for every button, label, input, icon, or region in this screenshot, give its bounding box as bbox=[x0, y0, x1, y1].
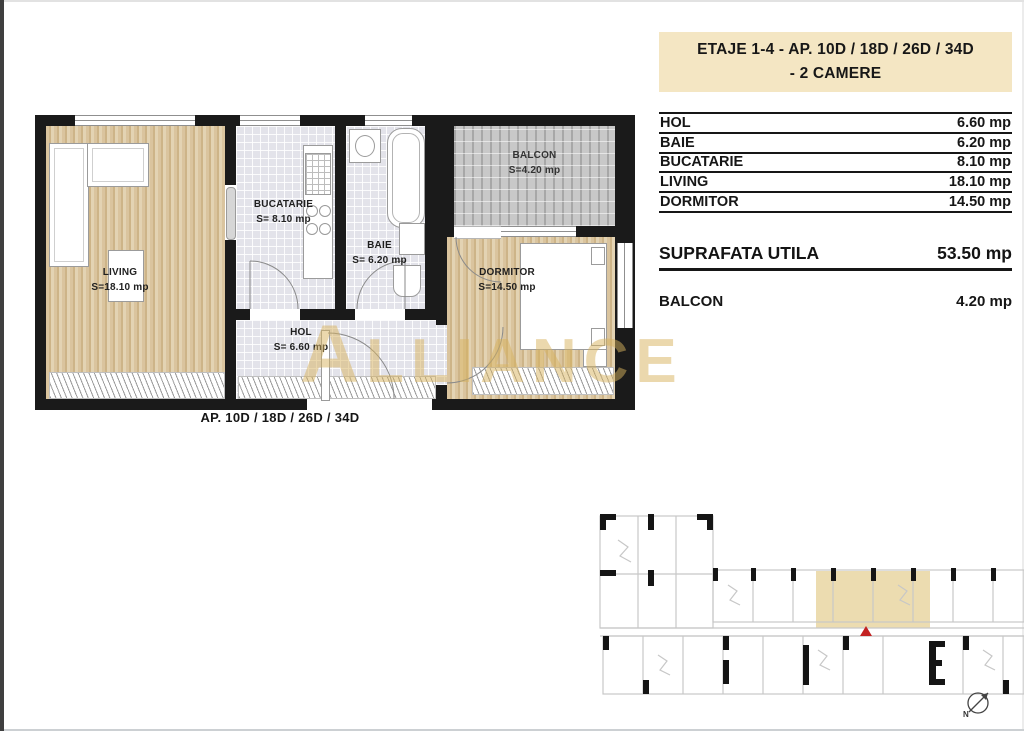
window-balcon-dormitor bbox=[501, 226, 576, 237]
room-label-bucatarie: BUCATARIE S= 8.10 mp bbox=[231, 197, 336, 227]
area-row-label: HOL bbox=[660, 115, 691, 131]
area-row-value: 18.10 mp bbox=[949, 174, 1011, 190]
key-plan: N bbox=[588, 500, 1024, 728]
balcony-door-opening bbox=[454, 226, 501, 239]
room-label-baie: BAIE S= 6.20 mp bbox=[337, 238, 422, 268]
wall bbox=[225, 115, 236, 185]
area-row-label: LIVING bbox=[660, 174, 708, 190]
wall bbox=[576, 226, 615, 237]
wall bbox=[335, 115, 346, 320]
area-row-value: 14.50 mp bbox=[949, 194, 1011, 210]
washing-machine-drum bbox=[355, 135, 375, 157]
page-border-left bbox=[0, 0, 4, 731]
wall bbox=[35, 115, 46, 410]
wall bbox=[35, 399, 307, 410]
radiator-strip-living bbox=[49, 372, 225, 399]
wall bbox=[225, 240, 236, 399]
area-row-label: DORMITOR bbox=[660, 194, 739, 210]
compass-icon bbox=[968, 693, 988, 713]
area-row-label: BAIE bbox=[660, 135, 695, 151]
header-title-line2: - 2 CAMERE bbox=[790, 62, 882, 86]
total-area-value: 53.50 mp bbox=[937, 243, 1012, 264]
room-label-living: LIVING S=18.10 mp bbox=[45, 265, 195, 295]
bathtub-inner bbox=[392, 133, 420, 223]
balcony-area-value: 4.20 mp bbox=[956, 293, 1012, 310]
area-row-baie: BAIE 6.20 mp bbox=[659, 134, 1012, 154]
area-row-value: 6.60 mp bbox=[957, 115, 1011, 131]
pillow bbox=[591, 247, 605, 265]
area-row-hol: HOL 6.60 mp bbox=[659, 114, 1012, 134]
plan-header-box: ETAJE 1-4 - AP. 10D / 18D / 26D / 34D - … bbox=[659, 32, 1012, 92]
key-plan-outline bbox=[600, 516, 1024, 694]
wall bbox=[236, 309, 250, 320]
page-border-top bbox=[4, 0, 1024, 2]
area-row-living: LIVING 18.10 mp bbox=[659, 173, 1012, 193]
washing-machine bbox=[349, 129, 381, 163]
total-area-label: SUPRAFATA UTILA bbox=[659, 243, 819, 264]
alliance-watermark: ALLIANCE bbox=[300, 302, 730, 408]
toilet bbox=[393, 265, 421, 297]
compass-north-label: N bbox=[963, 710, 969, 719]
key-plan-walls bbox=[600, 514, 1009, 694]
area-row-dormitor: DORMITOR 14.50 mp bbox=[659, 193, 1012, 213]
wall bbox=[425, 115, 454, 237]
area-row-bucatarie: BUCATARIE 8.10 mp bbox=[659, 154, 1012, 174]
sofa bbox=[49, 143, 89, 267]
area-row-value: 6.20 mp bbox=[957, 135, 1011, 151]
room-label-dormitor: DORMITOR S=14.50 mp bbox=[437, 265, 577, 295]
bathtub bbox=[387, 128, 425, 228]
area-table: HOL 6.60 mp BAIE 6.20 mp BUCATARIE 8.10 … bbox=[659, 112, 1012, 213]
header-title-line1: ETAJE 1-4 - AP. 10D / 18D / 26D / 34D bbox=[697, 38, 974, 62]
room-label-balcon: BALCON S=4.20 mp bbox=[454, 148, 615, 178]
window-living bbox=[75, 115, 195, 126]
area-row-value: 8.10 mp bbox=[957, 154, 1011, 170]
plan-caption: AP. 10D / 18D / 26D / 34D bbox=[185, 410, 375, 425]
kitchen-sink bbox=[305, 153, 331, 195]
area-row-label: BUCATARIE bbox=[660, 154, 743, 170]
window-bucatarie bbox=[240, 115, 300, 126]
wall bbox=[300, 115, 365, 126]
window-baie bbox=[365, 115, 412, 126]
sofa-arm bbox=[87, 143, 149, 187]
total-area-row: SUPRAFATA UTILA 53.50 mp bbox=[659, 243, 1012, 271]
